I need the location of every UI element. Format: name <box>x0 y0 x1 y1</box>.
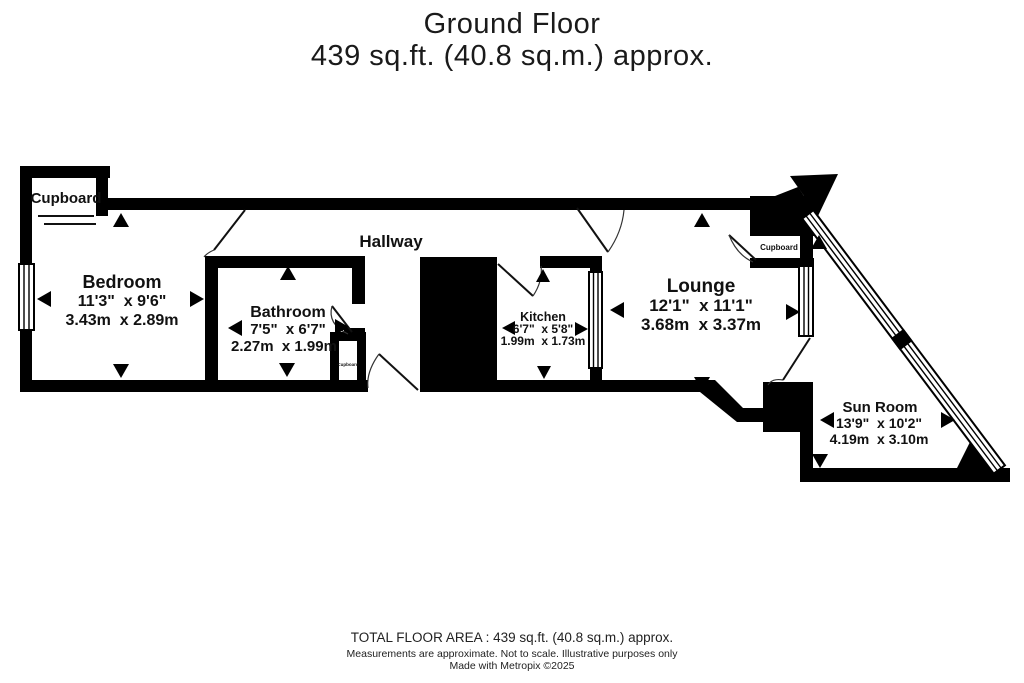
sunroom-door <box>783 338 810 380</box>
cupboard-lounge-label: Cupboard <box>760 243 798 252</box>
arrow-left-icon <box>37 291 51 307</box>
bedroom-label: Bedroom <box>82 272 161 292</box>
stairs-block <box>420 257 497 392</box>
sunroom-dims-imperial: 13'9" x 10'2" <box>836 415 922 431</box>
lounge-label: Lounge <box>667 276 736 297</box>
lounge-dims-imperial: 12'1" x 11'1" <box>649 296 753 315</box>
arrow-right-icon <box>190 291 204 307</box>
bedroom-door <box>214 210 245 250</box>
lounge-window <box>799 266 813 336</box>
bedroom-dims-imperial: 11'3" x 9'6" <box>78 293 167 310</box>
floorplan-drawing: Cupboard Hallway Bedroom 11'3" x 9'6" 3.… <box>0 0 1024 683</box>
bedroom-window <box>19 264 34 330</box>
bathroom-label: Bathroom <box>250 304 326 321</box>
cupboard-topleft-label: Cupboard <box>31 190 102 207</box>
lounge-cupboard-door <box>729 235 756 260</box>
lounge-door <box>577 208 608 252</box>
floorplan-page: Ground Floor 439 sq.ft. (40.8 sq.m.) app… <box>0 0 1024 683</box>
hall-rear-door <box>379 354 418 390</box>
kitchen-dims-metric: 1.99m x 1.73m <box>501 334 586 348</box>
arrow-down-icon <box>113 364 129 378</box>
bathroom-dims-imperial: 7'5" x 6'7" <box>250 321 326 338</box>
sunroom-dims-metric: 4.19m x 3.10m <box>830 431 929 447</box>
arrow-up-icon <box>113 213 129 227</box>
bathroom-dims-metric: 2.27m x 1.99m <box>231 338 337 355</box>
cupboard-hall-label: Cupboard <box>337 362 358 367</box>
kitchen-window <box>589 272 602 368</box>
credit: Made with Metropix ©2025 <box>0 660 1024 672</box>
lounge-dims-metric: 3.68m x 3.37m <box>641 315 761 334</box>
kitchen-door <box>498 264 533 296</box>
total-floor-area: TOTAL FLOOR AREA : 439 sq.ft. (40.8 sq.m… <box>0 630 1024 645</box>
sunroom-label: Sun Room <box>843 399 918 416</box>
hallway-label: Hallway <box>359 232 423 251</box>
bedroom-dims-metric: 3.43m x 2.89m <box>66 312 179 329</box>
disclaimer: Measurements are approximate. Not to sca… <box>0 648 1024 660</box>
